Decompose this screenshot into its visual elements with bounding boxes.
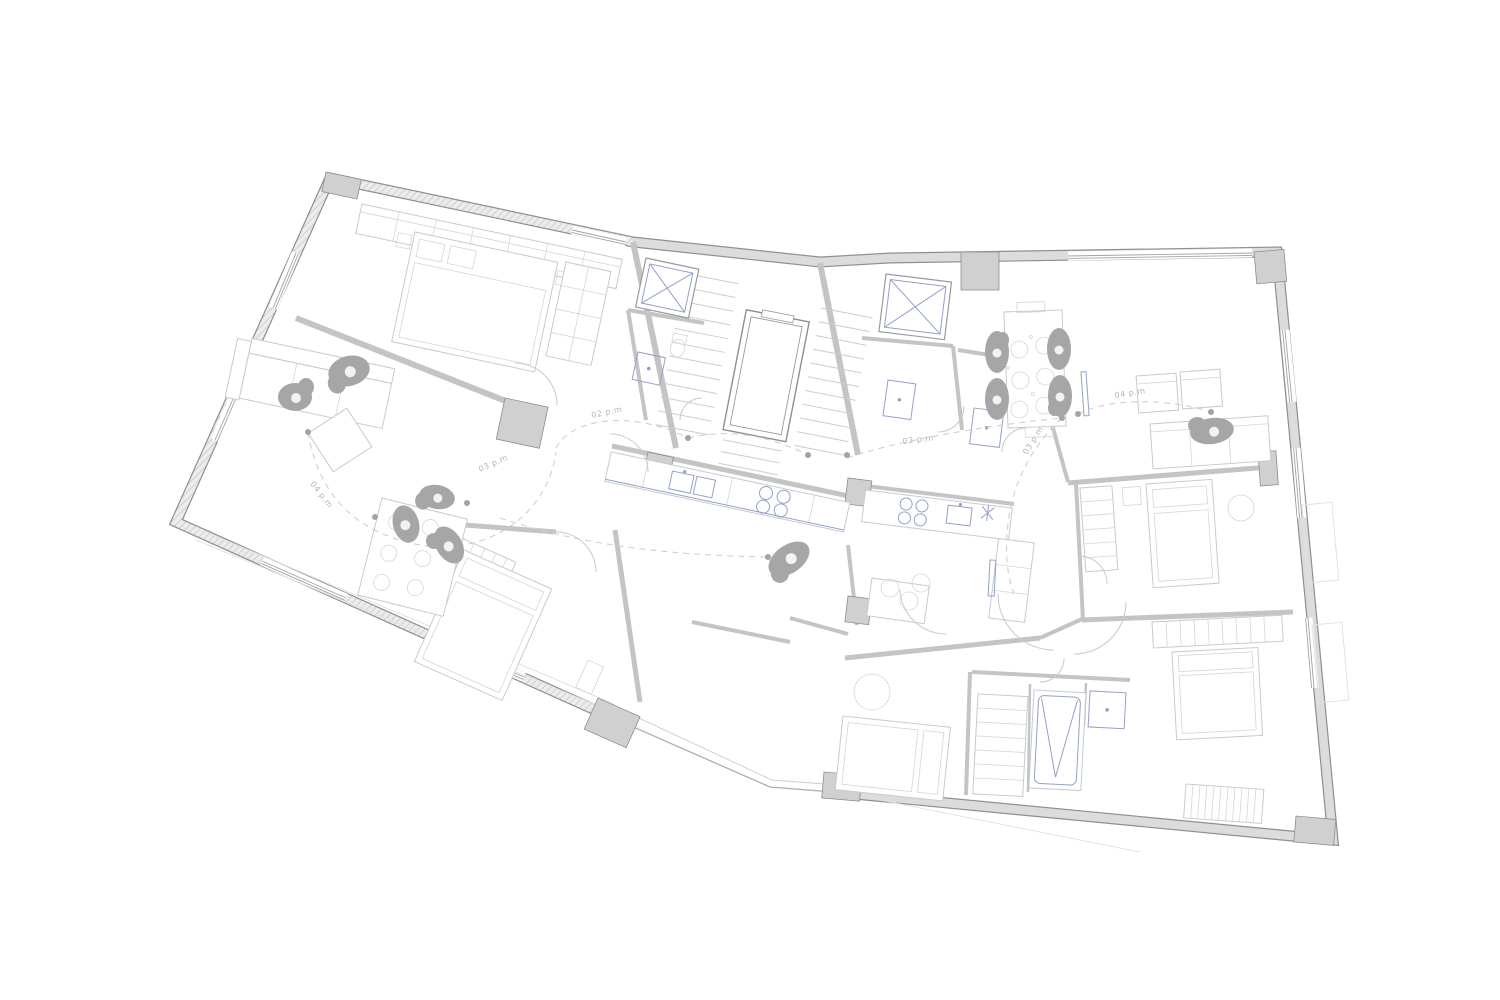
rug-circle	[854, 674, 890, 710]
sun-position-dot	[685, 435, 691, 441]
skylight-shaft-right	[879, 274, 952, 340]
corner-block	[1254, 249, 1287, 283]
bathroom-bottom-wall	[966, 672, 970, 795]
sun-position-dot	[765, 554, 771, 560]
window	[273, 253, 298, 309]
person-figure	[985, 378, 1009, 420]
side-table	[1122, 486, 1141, 505]
partition	[790, 618, 848, 634]
partition	[1040, 619, 1082, 638]
sun-time-label-2: 04 p.m	[308, 480, 334, 510]
wardrobe-bedroom-right	[1080, 486, 1118, 572]
window	[572, 230, 627, 244]
stair-core-wall-right	[820, 263, 858, 455]
terrace-edge-inner	[628, 713, 838, 785]
radiator-bench	[1184, 784, 1264, 823]
kitchen-counter-return	[989, 539, 1034, 623]
wardrobe-bedroom-right-lower	[1152, 615, 1283, 648]
bed-right-lower	[1172, 647, 1262, 739]
sun-time-label-1: 02 p.m	[591, 405, 623, 420]
sun-path-arc	[500, 518, 765, 557]
partition	[692, 622, 790, 642]
sun-time-label-5: 03 p.m	[1021, 425, 1045, 456]
person-figure	[1048, 375, 1072, 417]
kitchen-left	[605, 452, 850, 532]
kitchen-counter	[862, 490, 1013, 540]
bathroom-right-core	[883, 380, 916, 420]
partition-bedroom-left	[615, 530, 640, 702]
partition-livingroom-bedroom	[1068, 467, 1270, 483]
bed-single-right-mid	[1122, 479, 1219, 589]
bed-mid-bottom	[835, 716, 950, 801]
partition-hall	[845, 638, 1040, 658]
desk-with-stools	[867, 574, 930, 624]
bathroom-bottom	[1029, 688, 1126, 793]
wall-radiator	[576, 660, 604, 694]
bathroom-bottom-wall	[972, 672, 1130, 680]
bathroom-wall	[953, 346, 962, 430]
kitchen-counter	[605, 452, 850, 532]
skylight-shaft-left	[636, 258, 699, 318]
rug-circle	[1228, 495, 1254, 521]
window	[261, 561, 346, 600]
sliding-door-blue	[1081, 372, 1089, 416]
entry-pier	[496, 398, 548, 448]
sun-time-label-3: 03 p.m	[477, 453, 509, 474]
sun-position-dot	[1208, 409, 1214, 415]
bathtub	[1029, 690, 1086, 791]
person-figure	[760, 534, 817, 586]
sun-position-dot	[305, 429, 311, 435]
sun-time-label-4: 02 p.m	[902, 433, 934, 446]
elevator	[723, 307, 810, 442]
window	[1068, 253, 1252, 258]
bathroom-left-wall	[628, 310, 646, 420]
floor-plan-drawing: 02 p.m 04 p.m 03 p.m 02 p.m 03 p.m 04 p.…	[0, 0, 1500, 1000]
window	[1294, 448, 1302, 518]
person-figure	[1047, 328, 1071, 370]
pier	[961, 252, 999, 290]
sun-position-dot	[464, 500, 470, 506]
sun-position-dot	[844, 452, 850, 458]
terrace-edge	[622, 722, 833, 792]
armchair-square	[1180, 369, 1222, 409]
closet-bottom-center	[973, 694, 1028, 796]
sun-position-dot	[372, 514, 378, 520]
floor-plan-canvas: 02 p.m 04 p.m 03 p.m 02 p.m 03 p.m 04 p.…	[0, 0, 1500, 1000]
closet-shelved	[546, 262, 611, 365]
shower-tray	[1088, 691, 1126, 729]
toilet	[669, 333, 687, 358]
corner-block	[1294, 816, 1336, 845]
sun-position-dot	[805, 452, 811, 458]
person-figure	[985, 331, 1009, 373]
sun-position-dot	[1075, 411, 1081, 417]
